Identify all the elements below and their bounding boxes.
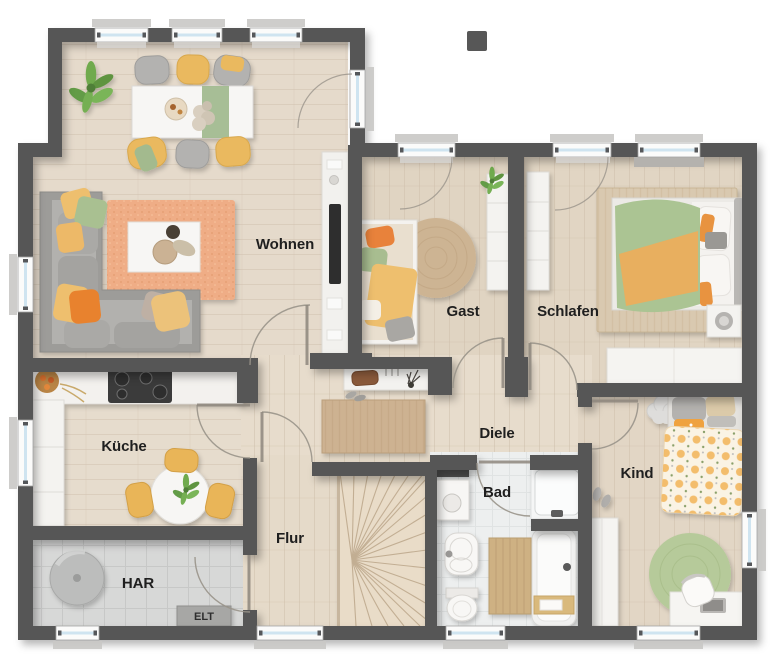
- room-label-kind: Kind: [621, 465, 654, 482]
- window-cap: [639, 631, 643, 636]
- window-cap: [747, 514, 752, 518]
- dining-chair: [175, 139, 209, 169]
- chimney: [467, 31, 487, 51]
- window: [254, 626, 326, 649]
- sink-faucet-icon: [446, 551, 453, 558]
- burner: [115, 372, 129, 386]
- window-glass: [450, 632, 501, 635]
- wall: [348, 145, 362, 369]
- wall: [18, 143, 33, 640]
- window-cap: [252, 33, 256, 38]
- floor-plan: Wohnen Gast Schlafen Küche Diele Kind Fl…: [0, 0, 775, 662]
- room-label-elt: ELT: [194, 611, 214, 623]
- room-label-schlafen: Schlafen: [537, 303, 599, 320]
- window-sill: [366, 67, 374, 131]
- bag-icon: [352, 370, 379, 386]
- dining-table: [132, 86, 253, 138]
- lamp-top: [719, 316, 729, 326]
- window: [92, 19, 151, 42]
- dining-chair: [215, 136, 251, 167]
- fruit: [44, 384, 50, 390]
- window-glass: [254, 34, 298, 37]
- radiator: [400, 157, 453, 163]
- washer-door: [443, 494, 461, 512]
- window: [350, 67, 374, 131]
- window-cap: [695, 631, 699, 636]
- plate-food: [170, 104, 176, 110]
- wall: [578, 397, 592, 407]
- window-sill: [443, 641, 508, 649]
- room-label-gast: Gast: [447, 303, 480, 320]
- window-cap: [318, 631, 322, 636]
- window-sill: [169, 19, 225, 27]
- window-sill: [254, 641, 326, 649]
- burner: [117, 389, 127, 399]
- window: [634, 134, 704, 167]
- window: [742, 509, 766, 571]
- burner: [153, 385, 167, 399]
- window-cap: [23, 259, 28, 263]
- window-cap: [174, 33, 178, 38]
- plate-food: [178, 110, 183, 115]
- stairs-stringer: [337, 473, 340, 626]
- pillow-gray-knit: [705, 232, 727, 249]
- window-cap: [23, 422, 28, 426]
- pillow-gray: [672, 397, 706, 421]
- window-glass: [557, 149, 607, 152]
- window-glass: [641, 632, 696, 635]
- window-sill: [634, 641, 703, 649]
- window: [9, 417, 33, 489]
- window-cap: [259, 631, 263, 636]
- shower-inner: [535, 470, 579, 515]
- window-cap: [448, 631, 452, 636]
- window-cap: [450, 148, 454, 153]
- window-glass: [60, 632, 95, 635]
- wall: [48, 28, 62, 157]
- window-sill: [9, 254, 17, 315]
- window-sill: [247, 19, 305, 27]
- vase: [166, 225, 180, 239]
- fruit: [48, 377, 54, 383]
- tub-faucet-icon: [563, 563, 571, 571]
- wall: [578, 452, 592, 626]
- window-sill: [635, 134, 703, 142]
- window-cap: [94, 631, 98, 636]
- window: [395, 134, 458, 157]
- radiator: [97, 42, 146, 48]
- wall: [425, 462, 437, 626]
- room-label-wohnen: Wohnen: [256, 236, 314, 253]
- window-cap: [97, 33, 101, 38]
- shelf-item: [327, 160, 342, 169]
- kitchen-chair: [164, 448, 199, 473]
- wall: [237, 358, 258, 403]
- pillow-dot: [690, 424, 693, 427]
- shelf-item: [327, 298, 342, 309]
- window-cap: [500, 631, 504, 636]
- pillow-yellow: [55, 221, 85, 253]
- window-glass: [356, 74, 359, 124]
- room-label-har: HAR: [122, 575, 154, 592]
- window-cap: [297, 33, 301, 38]
- window-cap: [58, 631, 62, 636]
- fridge-cabinet: [33, 400, 64, 526]
- window-glass: [24, 261, 27, 308]
- window-cap: [143, 33, 147, 38]
- wall: [577, 383, 757, 397]
- window-sill: [758, 509, 766, 571]
- wall: [243, 540, 257, 555]
- window: [550, 134, 614, 157]
- pillow-gray: [707, 416, 736, 427]
- wall: [530, 455, 583, 470]
- window-sill: [550, 134, 614, 142]
- window-cap: [747, 563, 752, 567]
- window: [634, 626, 703, 649]
- wall: [18, 526, 257, 540]
- window-cap: [606, 148, 610, 153]
- serving-plate: [165, 98, 187, 120]
- polka-duvet-pattern: [661, 426, 745, 516]
- shelf-item: [330, 176, 339, 185]
- room-label-bad: Bad: [483, 484, 511, 501]
- dining-chair: [134, 55, 169, 85]
- shelf-item: [327, 330, 342, 340]
- dining-chair: [176, 54, 209, 84]
- staircase: [337, 473, 427, 626]
- window-glass: [24, 424, 27, 482]
- window-glass: [261, 632, 319, 635]
- room-label-kueche: Küche: [101, 438, 146, 455]
- wall: [508, 150, 524, 369]
- window-cap: [640, 148, 644, 153]
- radiator: [252, 42, 300, 48]
- window-glass: [99, 34, 144, 37]
- window-cap: [355, 123, 360, 127]
- window-cap: [23, 481, 28, 485]
- wall: [348, 357, 438, 369]
- window: [247, 19, 305, 42]
- wall: [428, 357, 452, 395]
- wall: [430, 455, 477, 470]
- window: [443, 626, 508, 649]
- window: [9, 254, 33, 315]
- wall: [531, 519, 585, 531]
- runner-texture: [322, 400, 425, 453]
- window-sill: [395, 134, 458, 142]
- radiator: [556, 157, 610, 163]
- window-cap: [217, 33, 221, 38]
- pillow-orange: [68, 289, 101, 325]
- pillow-beige-dotted: [705, 393, 736, 418]
- fruit: [40, 375, 46, 381]
- window-glass: [748, 516, 751, 564]
- wall: [578, 443, 592, 455]
- burner: [140, 372, 152, 384]
- window: [169, 19, 225, 42]
- sofa-cushion: [64, 320, 110, 348]
- tv-icon: [329, 204, 341, 284]
- window-glass: [176, 34, 218, 37]
- room-label-diele: Diele: [479, 425, 514, 442]
- shower-faucet-icon: [551, 510, 563, 517]
- pillow-orange: [698, 281, 713, 306]
- wall: [312, 462, 437, 476]
- window-sill: [53, 641, 102, 649]
- tank-center: [73, 574, 81, 582]
- wall: [18, 358, 248, 372]
- window-cap: [400, 148, 404, 153]
- room-label-flur: Flur: [276, 530, 304, 547]
- window-cap: [355, 72, 360, 76]
- caddy-towel: [540, 600, 562, 610]
- roller-shutter-box: [634, 157, 704, 167]
- window-cap: [555, 148, 559, 153]
- window: [53, 626, 102, 649]
- pillow-white: [359, 300, 381, 320]
- window-glass: [642, 149, 696, 152]
- window-sill: [9, 417, 17, 489]
- window-glass: [402, 149, 451, 152]
- radiator: [174, 42, 220, 48]
- window-cap: [695, 148, 699, 153]
- window-sill: [92, 19, 151, 27]
- window-cap: [23, 307, 28, 311]
- vase-small: [408, 382, 414, 388]
